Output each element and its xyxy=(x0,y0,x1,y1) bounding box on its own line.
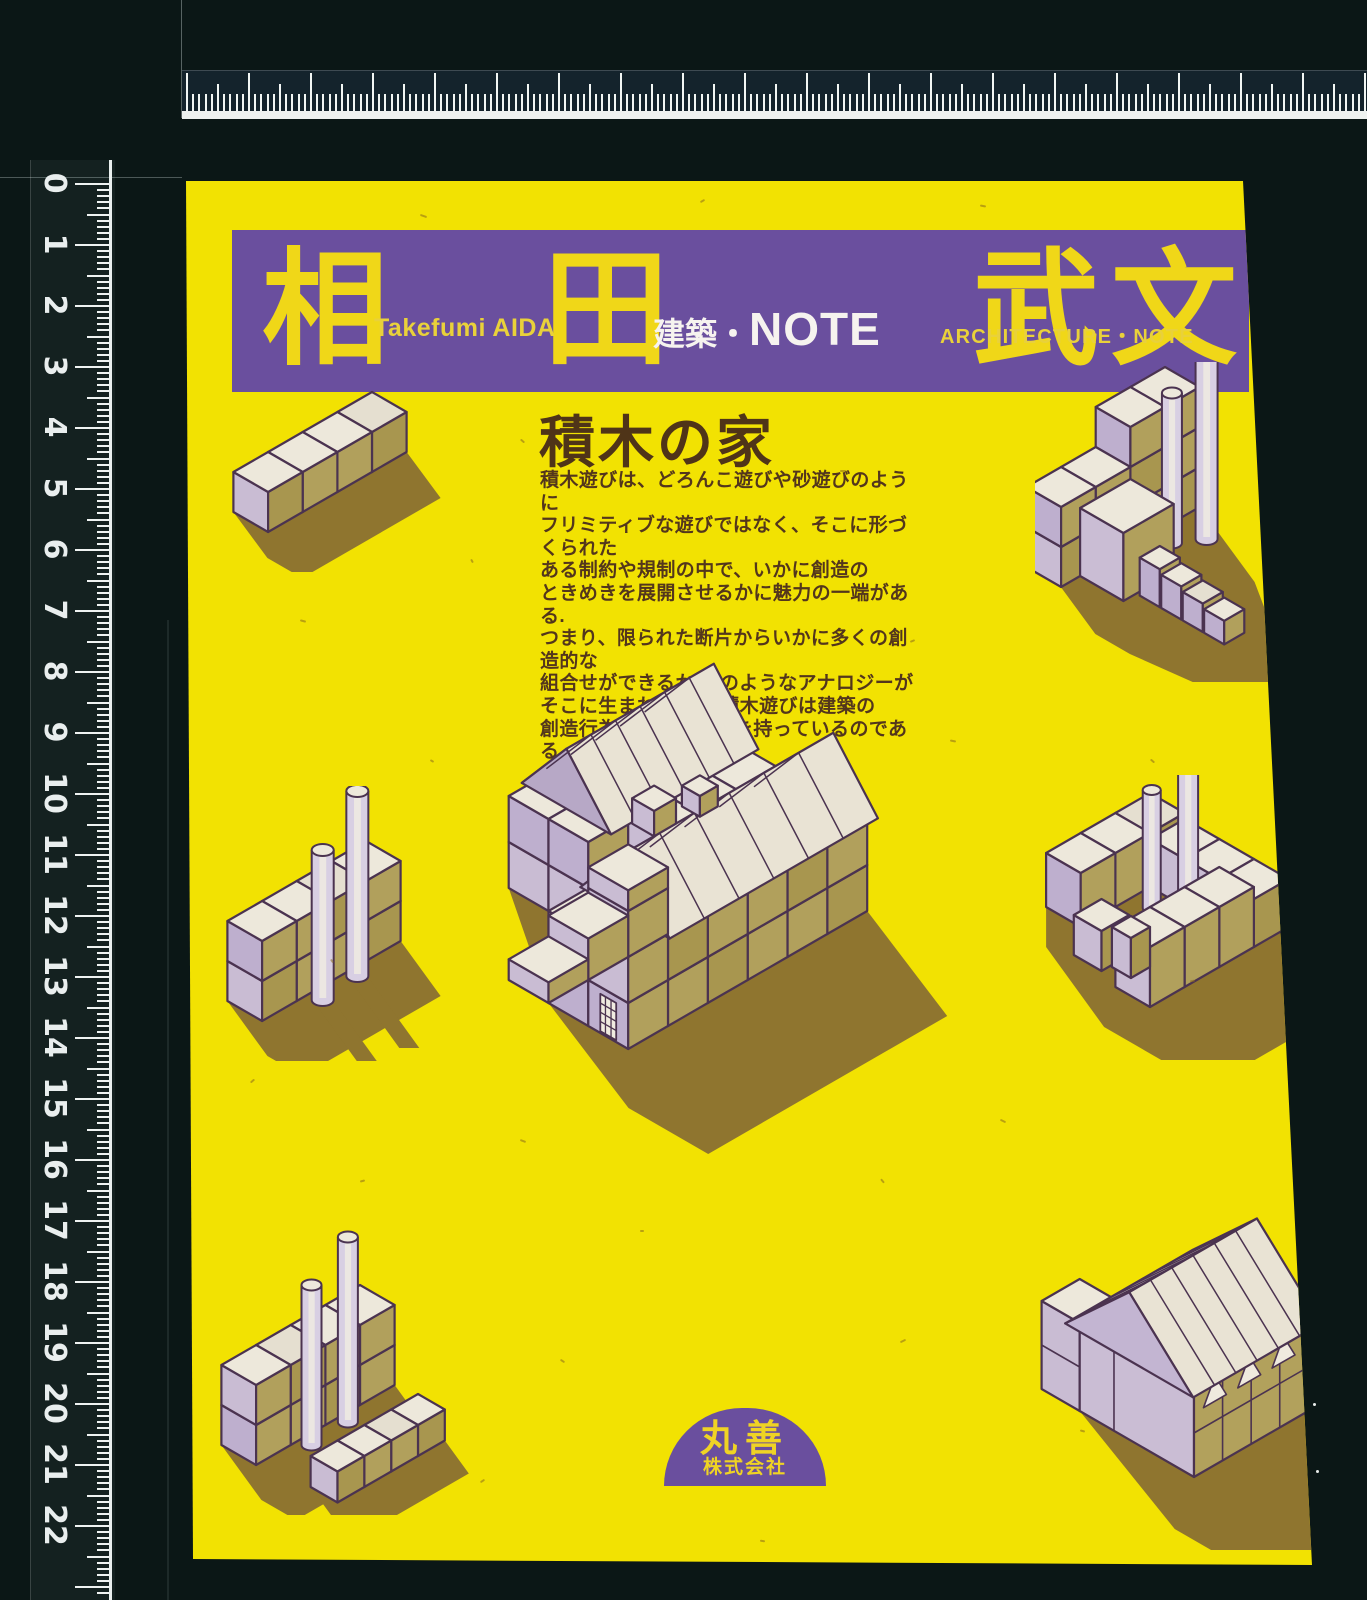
series-title-jp: 建築・NOTE xyxy=(653,302,881,356)
illustration-block-wall-cylinders xyxy=(216,786,466,1061)
illustration-block-gable-house xyxy=(1026,1215,1331,1550)
illustration-block-courtyard xyxy=(1012,775,1302,1060)
left-ruler-number: 4 xyxy=(33,405,77,449)
left-ruler-number: 2 xyxy=(33,283,77,327)
left-ruler-number: 19 xyxy=(33,1320,77,1364)
scan-photo: 012345678910111213141516171819202122 相 田… xyxy=(0,0,1367,1600)
illustration-large-block-house xyxy=(498,646,968,1161)
top-ruler xyxy=(182,70,1367,119)
publisher-badge: 丸善 株式会社 xyxy=(664,1408,826,1486)
publisher-suffix: 株式会社 xyxy=(664,1458,826,1478)
left-ruler-number: 20 xyxy=(33,1381,77,1425)
banner-kanji-1: 相 xyxy=(262,230,388,392)
illustration-block-row xyxy=(222,372,452,572)
left-ruler-number: 11 xyxy=(33,832,77,876)
left-ruler-number: 3 xyxy=(33,344,77,388)
book-cover: 相 田 武 文 Takefumi AIDA 建築・NOTE ARCHITECTU… xyxy=(0,0,1367,1600)
left-ruler-number: 9 xyxy=(33,710,77,754)
series-jp-note: NOTE xyxy=(749,302,881,356)
banner-kanji-2: 田 xyxy=(543,230,669,392)
left-ruler-number: 14 xyxy=(33,1015,77,1059)
body-line: 積木遊びは、どろんこ遊びや砂遊びのように xyxy=(540,470,920,515)
left-ruler-number: 12 xyxy=(33,893,77,937)
series-title-en: ARCHITECTURE・NOTE xyxy=(940,320,1194,349)
left-ruler: 012345678910111213141516171819202122 xyxy=(30,160,115,1600)
left-ruler-number: 8 xyxy=(33,649,77,693)
illustration-block-wall-row xyxy=(210,1230,490,1515)
series-jp-prefix: 建築・ xyxy=(653,309,749,355)
left-ruler-number: 10 xyxy=(33,771,77,815)
illustration-block-c-shape xyxy=(1035,362,1295,682)
left-ruler-number: 7 xyxy=(33,588,77,632)
left-ruler-number: 6 xyxy=(33,527,77,571)
left-ruler-number: 5 xyxy=(33,466,77,510)
left-ruler-number: 21 xyxy=(33,1442,77,1486)
scan-dust xyxy=(1316,1470,1319,1473)
book-edge-reflection xyxy=(167,620,169,1600)
left-ruler-number: 18 xyxy=(33,1259,77,1303)
left-ruler-number: 1 xyxy=(33,222,77,266)
left-ruler-number: 22 xyxy=(33,1503,77,1547)
left-ruler-number: 17 xyxy=(33,1198,77,1242)
body-line: ときめきを展開させるかに魅力の一端がある. xyxy=(540,583,920,628)
top-ruler-baseline xyxy=(182,111,1367,119)
left-ruler-number: 15 xyxy=(33,1076,77,1120)
left-ruler-number: 13 xyxy=(33,954,77,998)
cover-title: 積木の家 xyxy=(539,398,775,479)
left-ruler-number: 0 xyxy=(33,161,77,205)
publisher-name: 丸善 xyxy=(664,1422,826,1458)
left-ruler-number: 16 xyxy=(33,1137,77,1181)
left-ruler-edge xyxy=(109,160,112,1600)
scan-dust xyxy=(1313,1403,1316,1406)
body-line: フリミティブな遊びではなく、そこに形づくられた xyxy=(540,515,920,560)
body-line: ある制約や規制の中で、いかに創造の xyxy=(540,560,920,583)
author-name-latin: Takefumi AIDA xyxy=(374,314,556,343)
